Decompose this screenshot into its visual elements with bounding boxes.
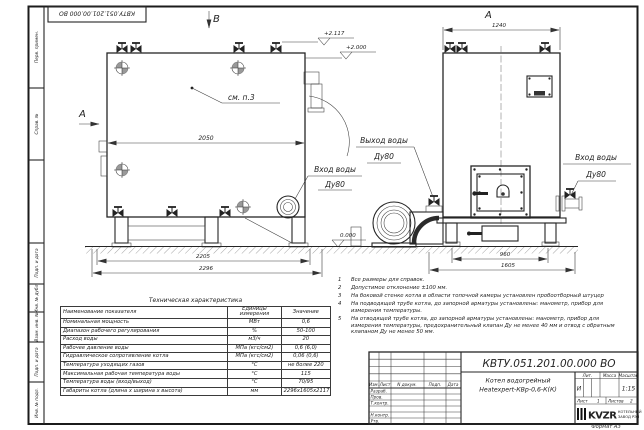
base-frame-front — [437, 218, 566, 246]
view-a-title: А — [484, 10, 492, 21]
note-item: 4 На подводящей трубе котла, до запорной… — [335, 301, 619, 314]
dim-1605: 1605 — [501, 263, 515, 269]
company-line1: КОТЕЛЬНЫЙ — [618, 409, 642, 414]
tech-cell: Расход воды — [61, 336, 228, 345]
furnace-door — [471, 166, 530, 218]
tech-col-value: Значение — [281, 307, 330, 319]
tech-cell: 0,6 — [281, 318, 330, 327]
tech-row: Диапазон рабочего регулирования%50-100 — [61, 327, 331, 336]
note-text: На боковой стенке котла в области топочн… — [351, 293, 619, 300]
view-a-front: А 1240 — [356, 10, 631, 274]
sign-row: Разраб. — [371, 389, 387, 394]
note-item: 3 На боковой стенке котла в области топо… — [335, 293, 619, 300]
blower-fan — [351, 196, 443, 247]
tech-cell: мм — [228, 387, 281, 396]
tech-table: Наименование показателя Единицы измерени… — [60, 306, 331, 396]
sheet-label: Лист — [576, 399, 588, 404]
tech-cell: Температура воды (вход/выход) — [61, 379, 228, 388]
tech-cell: Гидравлическое сопротивление котла — [61, 353, 228, 362]
sheets-num: 2 — [630, 399, 633, 404]
tech-row: Максимальная рабочая температура воды°С1… — [61, 370, 331, 379]
note-number: 2 — [335, 285, 351, 292]
tech-cell: % — [228, 327, 281, 336]
tech-cell: °С — [228, 370, 281, 379]
rev-col: Дата — [447, 382, 459, 387]
note-number: 3 — [335, 293, 351, 300]
drawing-sheet: { "doc": { "number": "КВТУ.051.201.00.00… — [0, 0, 644, 430]
tech-row: Номинальная мощностьМВт0,6 — [61, 318, 331, 327]
tech-row: Температура воды (вход/выход)°С70/95 — [61, 379, 331, 388]
tech-cell: Температура уходящих газов — [61, 361, 228, 370]
top-doc-number-stamp: КВТУ.051.201.00.000 ВО — [48, 7, 146, 23]
note-number: 5 — [335, 316, 351, 336]
dim-960: 960 — [500, 252, 511, 258]
tech-row: Расход водым3/ч20 — [61, 336, 331, 345]
mass-label: Масса — [603, 373, 617, 378]
tech-cell: °С — [228, 379, 281, 388]
product-name-line2: Heatexpert-КВр-0,6-К(К) — [479, 386, 557, 394]
margin-label: Справ. № — [34, 113, 40, 134]
tech-cell: °С — [228, 361, 281, 370]
scale-value: 1:15 — [622, 386, 636, 393]
tech-cell: 70/95 — [281, 379, 330, 388]
note-item: 5 На отводящей трубе котла, до запорной … — [335, 316, 619, 336]
rev-col: Подп. — [429, 382, 442, 387]
tech-cell: Габариты котла (длина х ширина х высота) — [61, 387, 228, 396]
view-b-label: В — [213, 14, 220, 25]
product-name-line1: Котел водогрейный — [486, 378, 551, 385]
dim-1240: 1240 — [492, 23, 506, 29]
tech-cell: МПа (кгс/см2) — [228, 344, 281, 353]
drawing-notes: 1 Все размеры для справок. 2 Допустимое … — [335, 277, 619, 337]
tech-col-units: Единицы измерения — [228, 307, 281, 319]
water-inlet-flange — [277, 196, 299, 218]
control-panel — [527, 76, 552, 97]
tech-cell: 20 — [281, 336, 330, 345]
tech-characteristics: Техническая характеристика Наименование … — [60, 297, 331, 396]
sheet-num: 1 — [597, 399, 600, 404]
note-text: Допустимое отклонение ±100 мм. — [351, 285, 619, 292]
tech-cell: 50-100 — [281, 327, 330, 336]
sign-row: Пров. — [371, 395, 383, 400]
view-a-arrow-label: А — [78, 109, 86, 120]
inlet-a-dn: Ду80 — [585, 170, 606, 179]
dim-2050: 2050 — [198, 135, 213, 142]
inlet-b-dn: Ду80 — [324, 180, 345, 189]
stamp-doc-number: КВТУ.051.201.00.000 ВО — [482, 358, 615, 370]
company-line2: ЗАВОД РЭП — [618, 415, 640, 419]
inlet-a-label: Вход воды — [575, 153, 617, 162]
outlet-dn: Ду80 — [373, 152, 394, 161]
elev-top: +2.117 — [324, 31, 345, 37]
sign-row: Утв. — [371, 419, 380, 424]
margin-label: Инв. № подл. — [34, 388, 40, 418]
dim-2296: 2296 — [199, 266, 213, 272]
sign-row: Т.контр. — [371, 401, 389, 406]
tech-cell: МПа (кгс/см2) — [228, 353, 281, 362]
tech-cell: 2296х1605х2117 — [281, 387, 330, 396]
tech-table-title: Техническая характеристика — [60, 297, 331, 304]
tech-cell: Номинальная мощность — [61, 318, 228, 327]
margin-label: Перв. примен. — [34, 31, 40, 63]
tech-cell: Диапазон рабочего регулирования — [61, 327, 228, 336]
margin-label: Инв. № дубл. — [34, 283, 40, 312]
note-text: На отводящей трубе котла, до запорной ар… — [351, 316, 619, 336]
note-item: 1 Все размеры для справок. — [335, 277, 619, 284]
boiler-body-front — [443, 53, 560, 217]
margin-strip: Перв. примен. Справ. № Подп. и дата Инв.… — [29, 7, 45, 425]
tech-row: Рабочее давление водыМПа (кгс/см2)0,6 (6… — [61, 344, 331, 353]
logo-text: KVZR — [588, 411, 617, 422]
tech-row: Габариты котла (длина х ширина х высота)… — [61, 387, 331, 396]
note-number: 4 — [335, 301, 351, 314]
tech-cell: не более 220 — [281, 361, 330, 370]
view-b-side: В А см. п.3 2050 — [78, 11, 362, 277]
note-text: На подводящей трубе котла, до запорной а… — [351, 301, 619, 314]
outlet-label: Выход воды — [360, 136, 408, 145]
elev-mid: +2.000 — [346, 45, 367, 51]
format-label: Формат А3 — [575, 424, 637, 430]
rev-col: Изм. — [369, 382, 379, 387]
title-block: Изм. Лист N докум. Подп. Дата Разраб. Пр… — [369, 352, 642, 424]
tech-cell: Максимальная рабочая температура воды — [61, 370, 228, 379]
note-number: 1 — [335, 277, 351, 284]
tech-row: Гидравлическое сопротивление котлаМПа (к… — [61, 353, 331, 362]
tech-cell: МВт — [228, 318, 281, 327]
scale-label: Масштаб — [619, 373, 639, 378]
tech-cell: 115 — [281, 370, 330, 379]
door-handle — [474, 192, 488, 195]
lit-label: Лит. — [582, 373, 593, 378]
rotated-doc-number: КВТУ.051.201.00.000 ВО — [59, 10, 135, 17]
base-frame-side — [112, 217, 308, 247]
elev-zero: 0.000 — [340, 233, 356, 239]
tech-cell: Рабочее давление воды — [61, 344, 228, 353]
sign-row: Н.контр. — [371, 413, 390, 418]
inlet-b-label: Вход воды — [314, 165, 356, 174]
note-text: Все размеры для справок. — [351, 277, 619, 284]
see-note-label: см. п.3 — [228, 93, 255, 102]
rev-col: Лист — [379, 382, 391, 387]
tech-cell: 0,06 (0,6) — [281, 353, 330, 362]
margin-label: Взам. инв. № — [34, 312, 40, 342]
tech-col-name: Наименование показателя — [61, 307, 228, 319]
lit-value: И — [577, 386, 582, 393]
margin-label: Подп. и дата — [34, 248, 40, 278]
company-logo: KVZR КОТЕЛЬНЫЙ ЗАВОД РЭП — [577, 408, 642, 422]
tech-cell: м3/ч — [228, 336, 281, 345]
tech-cell: 0,6 (6,0) — [281, 344, 330, 353]
rev-col: N докум. — [397, 382, 416, 387]
sheets-label: Листов — [607, 399, 624, 404]
note-item: 2 Допустимое отклонение ±100 мм. — [335, 285, 619, 292]
margin-label: Подп. и дата — [34, 347, 40, 377]
tech-row: Температура уходящих газов°Сне более 220 — [61, 361, 331, 370]
dim-2205: 2205 — [196, 254, 210, 260]
